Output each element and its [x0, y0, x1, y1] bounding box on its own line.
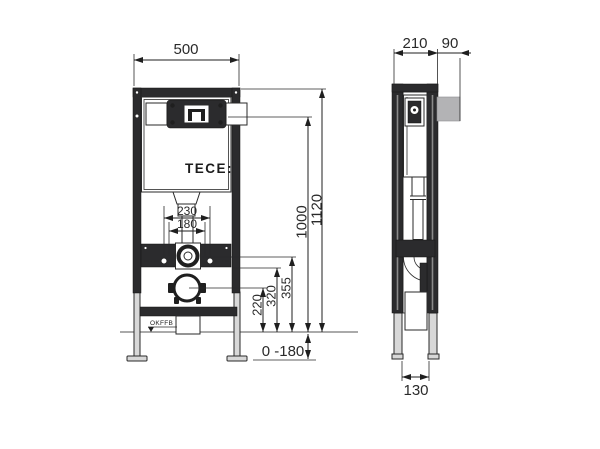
fixing-bolt-left: [161, 258, 167, 264]
dim-label-355: 355: [279, 277, 294, 299]
side-back-leg: [429, 313, 437, 356]
front-view: TECE:: [120, 41, 358, 361]
actuator-screw: [170, 120, 174, 124]
lower-crossbar: [140, 307, 237, 316]
actuator-left-bracket: [146, 103, 167, 125]
brand-logo-text: TECE:: [185, 161, 233, 176]
screw-dot: [235, 91, 237, 93]
actuator-window: [184, 105, 209, 123]
actuator-screw: [218, 120, 222, 124]
dim-label-210: 210: [402, 35, 427, 52]
dim-arrow-icon: [429, 50, 438, 56]
side-foot-cap: [392, 354, 403, 359]
side-flush-pipe: [413, 200, 423, 240]
left-leg: [134, 292, 140, 356]
side-flush-pipe-top: [412, 177, 424, 196]
technical-drawing-svg: TECE:: [0, 0, 600, 449]
outlet-box: [176, 316, 200, 334]
right-leg: [234, 292, 240, 356]
dim-label-230: 230: [177, 204, 197, 218]
fixing-crossbar: [141, 243, 231, 269]
side-actuator-pin: [413, 109, 416, 112]
floor-marker: OKFFB: [148, 320, 177, 332]
floor-marker-arrow-icon: [148, 327, 154, 332]
side-outlet-box: [405, 292, 427, 330]
left-foot-plate: [127, 356, 147, 361]
dim-label-130: 130: [403, 382, 428, 399]
screw-dot: [136, 91, 138, 93]
dim-label-adjust: 0 -180: [262, 343, 305, 360]
flush-pipe-socket-inner: [184, 252, 192, 260]
side-foot-cap: [428, 354, 439, 359]
elbow-connector: [420, 263, 427, 292]
left-rail: [133, 88, 141, 293]
drawing-canvas: TECE:: [0, 0, 600, 449]
actuator-screw: [170, 103, 174, 107]
drain-lug-bottom-right: [196, 297, 201, 304]
cistern: TECE:: [142, 97, 248, 192]
screw-dot: [225, 247, 227, 249]
side-top-bar: [392, 84, 438, 92]
drain-socket: [168, 275, 206, 304]
dim-label-220: 220: [250, 294, 265, 316]
side-cistern: [404, 95, 428, 240]
dim-label-500: 500: [173, 41, 198, 58]
floor-marker-label: OKFFB: [150, 320, 173, 327]
dim-label-1120: 1120: [308, 194, 325, 226]
actuator-rod-left: [188, 112, 192, 121]
flush-plate-box: [437, 97, 460, 121]
dim-label-320: 320: [264, 285, 279, 307]
fixing-bolt-right: [207, 258, 213, 264]
dim-label-180: 180: [177, 217, 197, 231]
flush-bend-taper: [173, 192, 200, 204]
dim-arrow-icon: [460, 50, 469, 56]
top-rail: [133, 88, 240, 97]
screw-dot: [144, 247, 146, 249]
drain-lug-left: [168, 283, 174, 293]
actuator-right-bracket: [226, 103, 247, 125]
side-crossbar: [396, 240, 435, 257]
right-foot-plate: [227, 356, 247, 361]
actuator-screw: [218, 103, 222, 107]
drain-lug-bottom-left: [174, 297, 179, 304]
actuator-rod-right: [201, 112, 205, 121]
dim-label-90: 90: [442, 35, 459, 52]
screw-dot: [136, 115, 139, 118]
actuator-rod-bar: [188, 109, 205, 112]
side-front-leg: [394, 313, 402, 356]
side-view: 210 90 130: [392, 35, 471, 399]
